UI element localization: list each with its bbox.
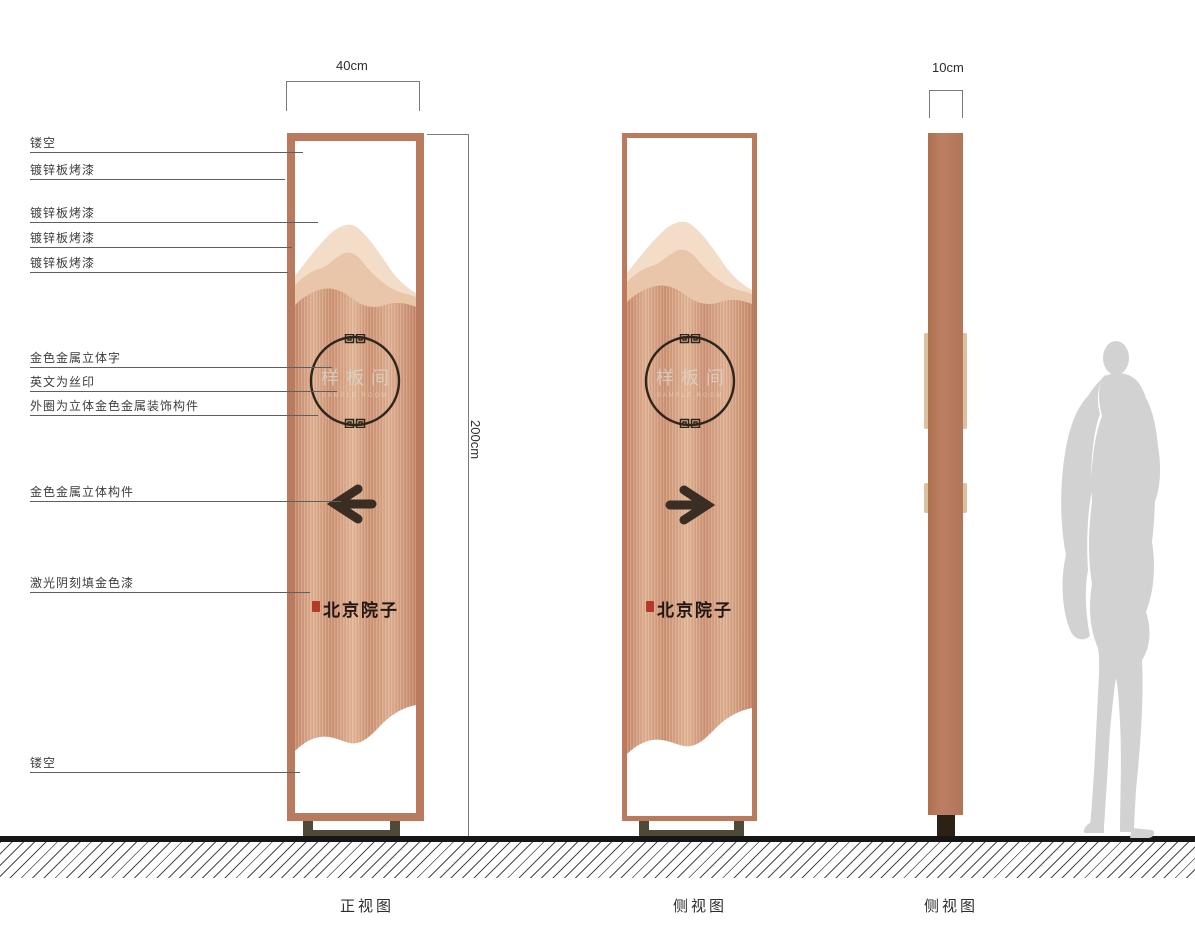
dimension-200cm-tick — [427, 134, 468, 135]
dimension-40cm-tick-left — [286, 81, 287, 111]
callout-leader-line — [30, 501, 341, 502]
room-name-english: SAMPLE ROOM — [322, 393, 389, 399]
ground-hatch — [0, 842, 1195, 878]
right-arrow-icon — [662, 483, 718, 527]
dimension-200cm-label: 200cm — [468, 420, 483, 459]
dimension-10cm-tick-left — [929, 90, 930, 118]
callout-label: 金色金属立体字 — [30, 349, 121, 366]
brand-name-text: 北京院子 — [323, 601, 399, 621]
bottom-cutout — [295, 693, 416, 813]
side-view-panel: 样板间 SAMPLE ROOM 北京院子 — [627, 138, 752, 816]
ornament-circle: 样板间 SAMPLE ROOM — [643, 334, 737, 428]
side-view-frame: 样板间 SAMPLE ROOM 北京院子 — [622, 133, 757, 821]
caption-side-view: 侧视图 — [673, 895, 727, 916]
callout-leader-line — [30, 272, 288, 273]
human-silhouette — [1040, 330, 1195, 840]
brand-name-text: 北京院子 — [657, 601, 733, 621]
callout-label: 镂空 — [30, 134, 56, 151]
front-view-panel: 样板间 SAMPLE ROOM 北京院子 — [295, 141, 416, 813]
dimension-10cm-tick-right — [962, 90, 963, 118]
dimension-10cm-line — [929, 90, 963, 91]
caption-front-view: 正视图 — [340, 895, 394, 916]
callout-label: 镀锌板烤漆 — [30, 161, 95, 178]
callout-label: 英文为丝印 — [30, 373, 95, 390]
callout-leader-line — [30, 179, 285, 180]
dimension-40cm-line — [286, 81, 420, 82]
caption-profile-view: 侧视图 — [924, 895, 978, 916]
callout-label: 外圈为立体金色金属装饰构件 — [30, 397, 199, 414]
callout-label: 镀锌板烤漆 — [30, 254, 95, 271]
brand-seal-icon — [646, 601, 654, 612]
dimension-40cm-tick-right — [419, 81, 420, 111]
profile-view-panel — [928, 133, 963, 815]
mountain-graphic — [627, 198, 752, 348]
callout-leader-line — [30, 592, 310, 593]
callout-leader-line — [30, 391, 337, 392]
callout-leader-line — [30, 415, 318, 416]
callout-label: 金色金属立体构件 — [30, 483, 134, 500]
callout-label: 镀锌板烤漆 — [30, 229, 95, 246]
brand-logo: 北京院子 — [295, 596, 416, 621]
brand-seal-icon — [312, 601, 320, 612]
callout-leader-line — [30, 367, 332, 368]
left-arrow-icon — [324, 482, 380, 526]
callout-label: 激光阴刻填金色漆 — [30, 574, 134, 591]
room-name-english: SAMPLE ROOM — [657, 393, 724, 399]
callout-leader-line — [30, 247, 292, 248]
bottom-cutout — [627, 696, 752, 816]
ornament-circle: 样板间 SAMPLE ROOM — [308, 334, 402, 428]
front-view-frame: 样板间 SAMPLE ROOM 北京院子 — [287, 133, 424, 821]
dimension-200cm-line — [468, 134, 469, 838]
brand-logo: 北京院子 — [627, 596, 752, 621]
callout-leader-line — [30, 152, 303, 153]
callout-label: 镀锌板烤漆 — [30, 204, 95, 221]
dimension-10cm-label: 10cm — [932, 60, 964, 75]
dimension-40cm-label: 40cm — [336, 58, 368, 73]
spec-drawing-canvas: 40cm 200cm 10cm — [0, 0, 1195, 927]
mountain-graphic — [295, 201, 416, 351]
callout-leader-line — [30, 772, 300, 773]
callout-leader-line — [30, 222, 318, 223]
room-name-text: 样板间 — [649, 364, 731, 390]
callout-label: 镂空 — [30, 754, 56, 771]
